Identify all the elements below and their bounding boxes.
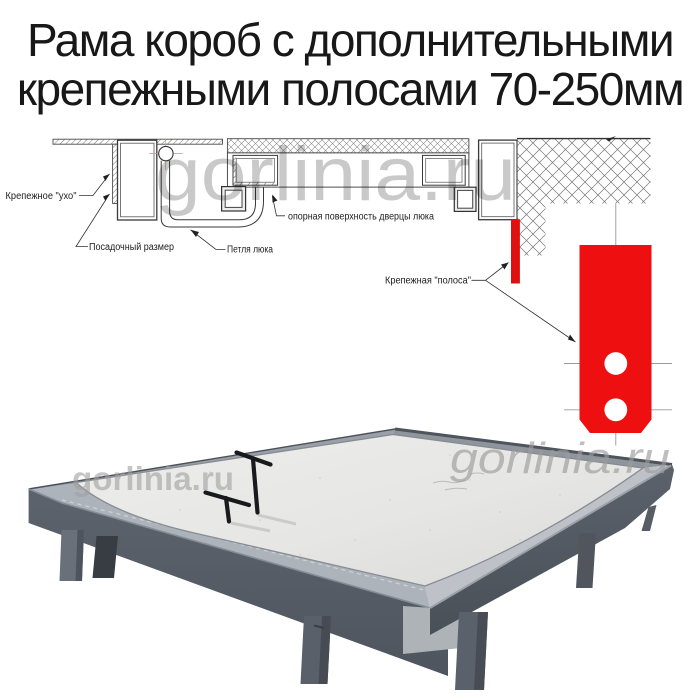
- svg-text:gorlinia.ru: gorlinia.ru: [72, 460, 234, 497]
- svg-text:Крепежная "полоса": Крепежная "полоса": [385, 275, 471, 286]
- svg-text:Посадочный размер: Посадочный размер: [89, 242, 174, 253]
- svg-text:Крепежное "ухо": Крепежное "ухо": [6, 191, 77, 202]
- svg-text:gorlinia.ru: gorlinia.ru: [155, 132, 516, 217]
- svg-text:Петля люка: Петля люка: [227, 245, 273, 256]
- svg-text:gorlinia.ru: gorlinia.ru: [450, 434, 670, 483]
